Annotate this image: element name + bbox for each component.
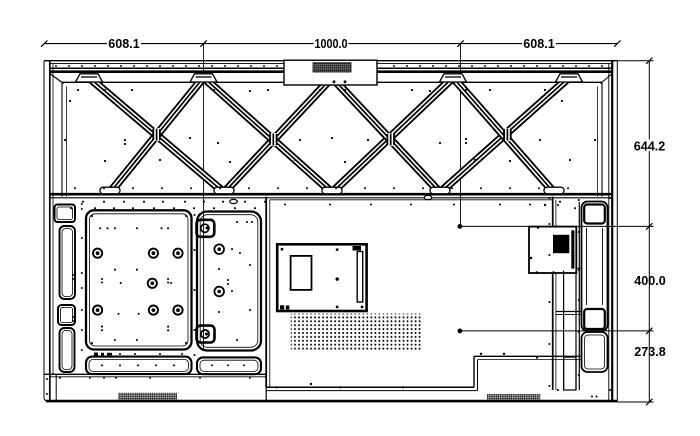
- svg-text:608.1: 608.1: [523, 36, 555, 51]
- svg-text:273.8: 273.8: [634, 344, 666, 359]
- svg-text:400.0: 400.0: [634, 273, 666, 288]
- svg-text:1000.0: 1000.0: [315, 36, 348, 51]
- svg-text:644.2: 644.2: [634, 139, 666, 154]
- svg-text:608.1: 608.1: [108, 36, 140, 51]
